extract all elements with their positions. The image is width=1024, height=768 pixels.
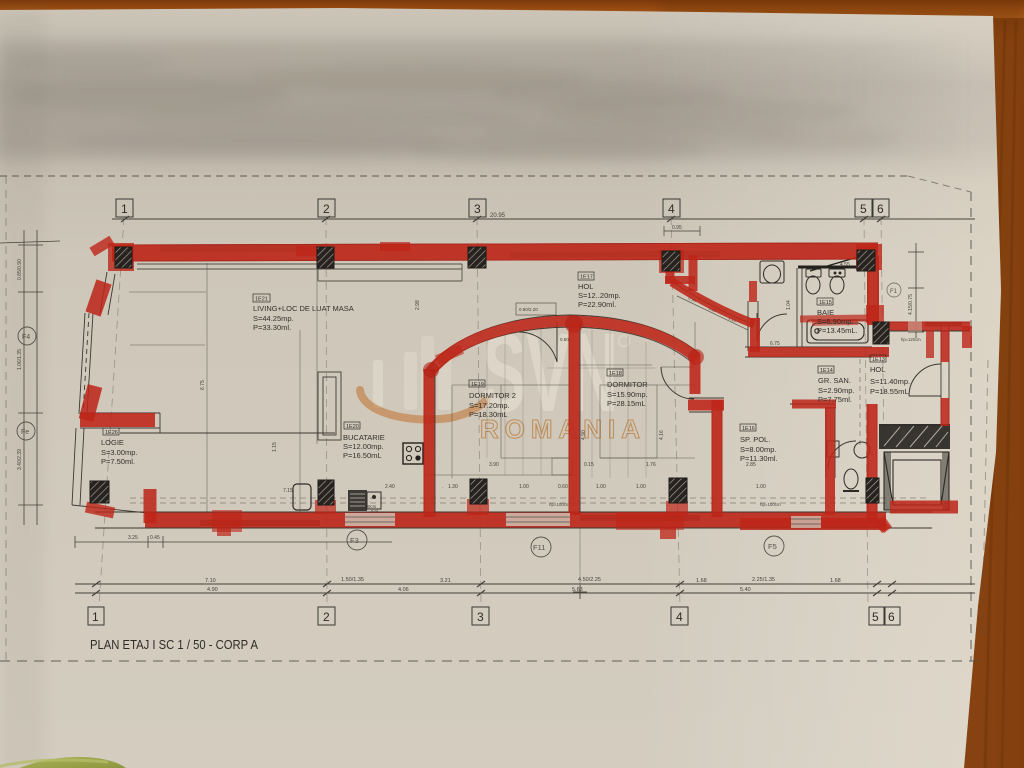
svg-text:2.85: 2.85 (746, 462, 756, 468)
svg-text:3.90: 3.90 (489, 462, 499, 468)
svg-text:4.90: 4.90 (207, 587, 218, 593)
svg-text:0.95: 0.95 (672, 225, 682, 231)
svg-text:P=7.75ml.: P=7.75ml. (818, 395, 852, 404)
svg-text:0.90/2.20: 0.90/2.20 (519, 307, 538, 312)
svg-text:BUCATARIE: BUCATARIE (343, 433, 385, 442)
svg-text:0.45: 0.45 (150, 535, 160, 541)
svg-text:S=15.90mp.: S=15.90mp. (607, 390, 648, 399)
svg-text:4.90: 4.90 (581, 430, 587, 440)
svg-text:1E18: 1E18 (609, 371, 622, 377)
svg-text:7.15: 7.15 (283, 488, 293, 494)
svg-text:SP. POL.: SP. POL. (740, 435, 770, 444)
svg-text:1E17: 1E17 (580, 275, 593, 281)
svg-text:5: 5 (872, 610, 879, 624)
svg-text:2.43: 2.43 (901, 430, 907, 440)
svg-text:6.75: 6.75 (770, 341, 780, 347)
svg-text:HOL: HOL (870, 365, 885, 374)
svg-text:2: 2 (323, 610, 330, 624)
svg-text:2.98: 2.98 (415, 300, 421, 310)
svg-text:6.75: 6.75 (200, 380, 206, 390)
svg-text:1.04: 1.04 (786, 300, 792, 310)
svg-text:PLAN ETAJ I SC 1 / 50 - CORP A: PLAN ETAJ I SC 1 / 50 - CORP A (90, 637, 258, 652)
svg-text:P=13.45mL.: P=13.45mL. (817, 326, 858, 335)
svg-text:2.40: 2.40 (385, 484, 395, 490)
svg-text:F1: F1 (890, 289, 898, 295)
svg-text:4.06: 4.06 (398, 587, 409, 593)
svg-text:3: 3 (477, 610, 484, 624)
svg-text:hp=100cm: hp=100cm (760, 502, 781, 507)
svg-text:1.68: 1.68 (696, 578, 707, 584)
svg-text:P=28.15mL: P=28.15mL (607, 399, 646, 408)
svg-text:F5: F5 (768, 542, 777, 551)
svg-text:DORMITOR 2: DORMITOR 2 (469, 391, 516, 400)
svg-text:hp=120cm: hp=120cm (901, 337, 921, 342)
svg-text:0.15: 0.15 (584, 462, 594, 468)
svg-text:1E20: 1E20 (346, 424, 359, 430)
svg-text:3: 3 (474, 202, 481, 216)
svg-text:3.25: 3.25 (128, 535, 138, 541)
svg-text:1E13: 1E13 (872, 357, 885, 363)
svg-text:hp=100cm: hp=100cm (549, 502, 570, 507)
svg-text:4.55: 4.55 (840, 262, 850, 268)
svg-text:P=33.30ml.: P=33.30ml. (253, 323, 291, 332)
svg-text:0.60: 0.60 (558, 484, 568, 490)
svg-text:S=6.90mp.: S=6.90mp. (817, 317, 853, 326)
svg-text:3.21: 3.21 (440, 578, 451, 584)
svg-text:5.40: 5.40 (740, 587, 751, 593)
svg-text:5: 5 (860, 202, 867, 216)
svg-text:1.00: 1.00 (756, 484, 766, 490)
svg-text:1.00: 1.00 (519, 484, 529, 490)
svg-text:1.76: 1.76 (646, 462, 656, 468)
svg-text:F4: F4 (22, 334, 30, 341)
svg-text:6: 6 (877, 202, 884, 216)
svg-text:4.50/2.25: 4.50/2.25 (578, 577, 601, 583)
svg-text:S=44.25mp.: S=44.25mp. (253, 314, 294, 323)
svg-text:2: 2 (323, 202, 330, 216)
svg-text:20.95: 20.95 (490, 213, 506, 219)
svg-text:.: . (442, 484, 443, 490)
svg-text:1E19: 1E19 (471, 382, 484, 388)
svg-text:7.10: 7.10 (205, 578, 216, 584)
svg-text:GR. SAN.: GR. SAN. (818, 376, 851, 385)
svg-text:P=18.55mL: P=18.55mL (870, 387, 909, 396)
svg-text:0.85/0.90: 0.85/0.90 (17, 259, 23, 280)
svg-text:6: 6 (888, 610, 895, 624)
svg-text:1.00: 1.00 (636, 484, 646, 490)
svg-text:1.50/1.35: 1.50/1.35 (341, 577, 364, 583)
svg-text:S=8.00mp.: S=8.00mp. (740, 445, 776, 454)
svg-text:F3: F3 (350, 536, 359, 545)
svg-text:1E16: 1E16 (742, 426, 755, 432)
svg-text:P=22.90ml.: P=22.90ml. (578, 300, 616, 309)
svg-text:P=18.30mL: P=18.30mL (469, 410, 508, 419)
svg-text:1E21: 1E21 (255, 297, 268, 303)
svg-text:1.30: 1.30 (448, 484, 458, 490)
svg-text:S=2.90mp.: S=2.90mp. (818, 386, 854, 395)
svg-text:S=17.20mp.: S=17.20mp. (469, 401, 510, 410)
svg-text:1: 1 (121, 202, 128, 216)
svg-text:DORMITOR: DORMITOR (607, 380, 648, 389)
svg-text:BAIE: BAIE (817, 308, 834, 317)
svg-text:4: 4 (668, 202, 675, 216)
svg-text:0.50: 0.50 (560, 337, 569, 342)
svg-text:1.68: 1.68 (830, 578, 841, 584)
svg-text:LOGIE: LOGIE (101, 438, 124, 447)
svg-text:1E14: 1E14 (820, 368, 833, 374)
svg-text:P=16.50mL: P=16.50mL (343, 451, 382, 460)
svg-text:1.15: 1.15 (272, 442, 278, 452)
svg-text:S=3.00mp.: S=3.00mp. (101, 448, 137, 457)
svg-text:1E26: 1E26 (105, 430, 118, 436)
svg-text:F11: F11 (533, 543, 545, 552)
svg-text:4: 4 (676, 610, 683, 624)
svg-text:S=11.40mp.: S=11.40mp. (870, 377, 910, 386)
svg-text:2.25/1.35: 2.25/1.35 (752, 577, 775, 583)
svg-text:P=7.50ml.: P=7.50ml. (101, 457, 135, 466)
svg-text:LIVING+LOC DE LUAT MASA: LIVING+LOC DE LUAT MASA (253, 304, 354, 313)
svg-text:1.06/1.35: 1.06/1.35 (17, 349, 23, 370)
svg-text:3.40/2.39: 3.40/2.39 (17, 449, 23, 470)
svg-text:1.00: 1.00 (596, 484, 606, 490)
svg-text:4.15/0.75: 4.15/0.75 (908, 294, 914, 315)
svg-text:1E15: 1E15 (819, 300, 832, 306)
svg-text:S=12..20mp.: S=12..20mp. (578, 291, 621, 300)
svg-text:S=12.00mp.: S=12.00mp. (343, 442, 384, 451)
svg-text:1: 1 (92, 610, 99, 624)
svg-text:Fe: Fe (21, 429, 29, 436)
svg-text:HOL: HOL (578, 282, 593, 291)
svg-text:4.16: 4.16 (659, 430, 665, 440)
